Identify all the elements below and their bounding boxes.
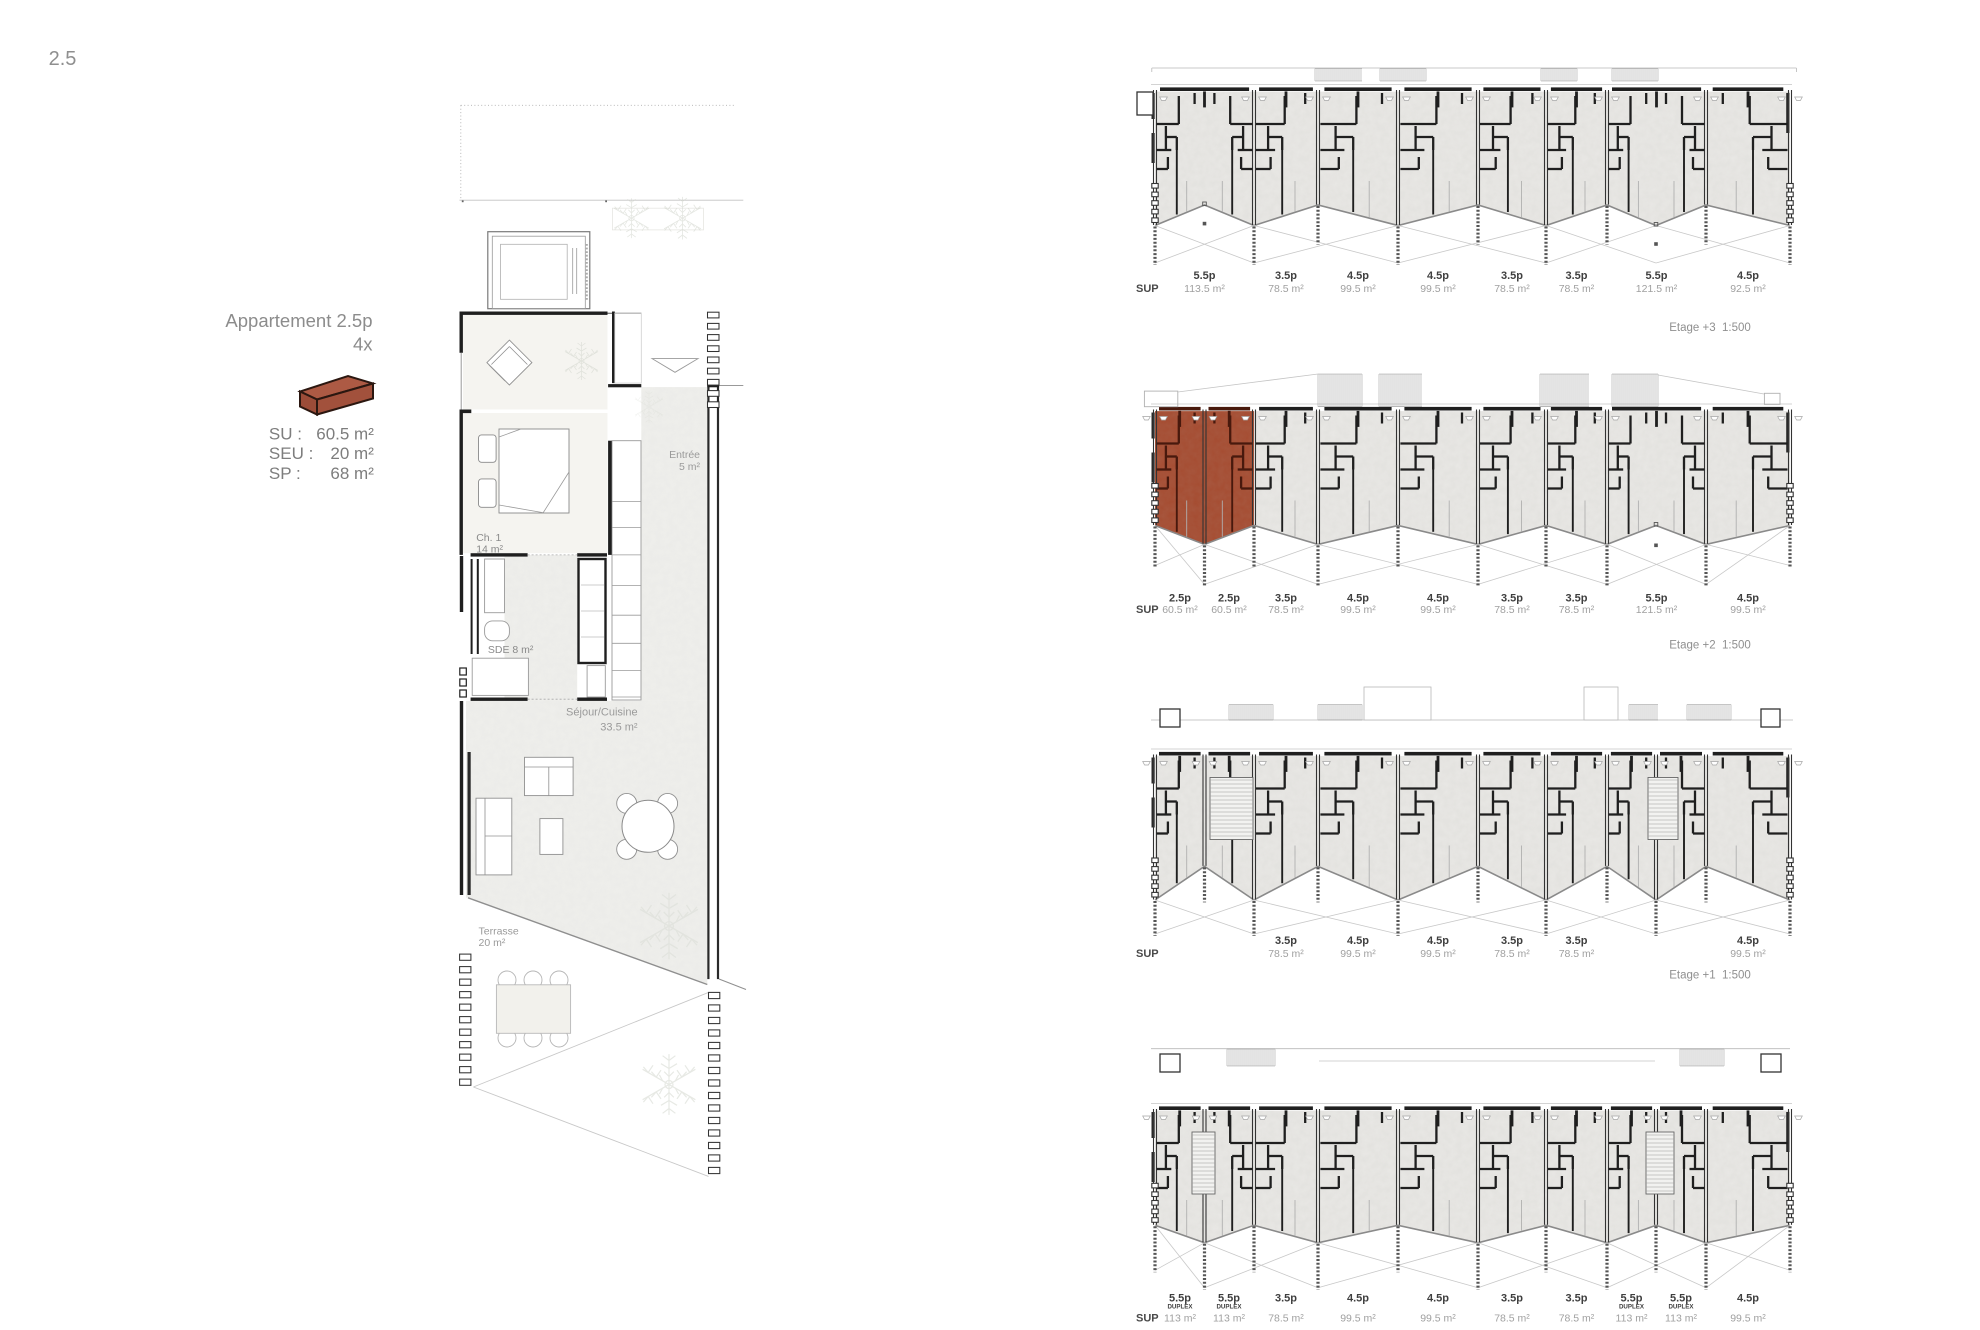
svg-text:Entrée: Entrée <box>669 449 700 461</box>
svg-text:5.5p: 5.5p <box>1193 270 1215 282</box>
svg-text:DUPLEX: DUPLEX <box>1216 1304 1242 1311</box>
svg-text:68 m²: 68 m² <box>330 464 374 483</box>
svg-text:5.5p: 5.5p <box>1645 592 1667 604</box>
svg-text:3.5p: 3.5p <box>1275 935 1297 947</box>
svg-text:Etage +2 1:500: Etage +2 1:500 <box>1669 640 1751 652</box>
svg-text:78.5 m²: 78.5 m² <box>1268 283 1304 295</box>
svg-text:4.5p: 4.5p <box>1427 1293 1449 1305</box>
svg-text:2.5p: 2.5p <box>1169 592 1191 604</box>
svg-text:113.5 m²: 113.5 m² <box>1184 283 1225 295</box>
svg-text:99.5 m²: 99.5 m² <box>1340 1312 1376 1324</box>
svg-text:78.5 m²: 78.5 m² <box>1494 948 1530 960</box>
svg-text:99.5 m²: 99.5 m² <box>1420 948 1456 960</box>
svg-text:99.5 m²: 99.5 m² <box>1730 1312 1766 1324</box>
svg-text:4.5p: 4.5p <box>1737 270 1759 282</box>
svg-text:3.5p: 3.5p <box>1501 1293 1523 1305</box>
svg-text:60.5 m²: 60.5 m² <box>316 425 374 444</box>
svg-text:78.5 m²: 78.5 m² <box>1268 948 1304 960</box>
svg-text:78.5 m²: 78.5 m² <box>1268 1312 1304 1324</box>
svg-text:121.5 m²: 121.5 m² <box>1636 283 1678 295</box>
svg-text:3.5p: 3.5p <box>1565 935 1587 947</box>
svg-text:2.5: 2.5 <box>49 48 77 70</box>
svg-text:4.5p: 4.5p <box>1427 592 1449 604</box>
svg-text:4.5p: 4.5p <box>1347 592 1369 604</box>
svg-text:113 m²: 113 m² <box>1616 1312 1648 1324</box>
svg-text:99.5 m²: 99.5 m² <box>1420 283 1456 295</box>
svg-text:14 m²: 14 m² <box>476 544 503 556</box>
svg-text:Ch. 1: Ch. 1 <box>476 532 501 544</box>
svg-text:3.5p: 3.5p <box>1501 592 1523 604</box>
svg-text:78.5 m²: 78.5 m² <box>1494 604 1530 616</box>
svg-text:20 m²: 20 m² <box>479 937 506 949</box>
svg-text:4.5p: 4.5p <box>1427 270 1449 282</box>
svg-text:113 m²: 113 m² <box>1213 1312 1245 1324</box>
svg-text:78.5 m²: 78.5 m² <box>1494 1312 1530 1324</box>
svg-text:113 m²: 113 m² <box>1665 1312 1697 1324</box>
svg-text:99.5 m²: 99.5 m² <box>1730 604 1766 616</box>
svg-text:3.5p: 3.5p <box>1565 1293 1587 1305</box>
svg-text:4.5p: 4.5p <box>1427 935 1449 947</box>
svg-text:78.5 m²: 78.5 m² <box>1494 283 1530 295</box>
svg-text:SP :: SP : <box>269 464 301 483</box>
svg-text:99.5 m²: 99.5 m² <box>1420 604 1456 616</box>
svg-text:3.5p: 3.5p <box>1275 270 1297 282</box>
svg-text:4.5p: 4.5p <box>1737 592 1759 604</box>
svg-text:3.5p: 3.5p <box>1501 270 1523 282</box>
svg-text:99.5 m²: 99.5 m² <box>1340 948 1376 960</box>
svg-text:SUP: SUP <box>1136 604 1159 616</box>
svg-text:DUPLEX: DUPLEX <box>1167 1304 1193 1311</box>
svg-text:Etage +1 1:500: Etage +1 1:500 <box>1669 970 1751 982</box>
svg-text:78.5 m²: 78.5 m² <box>1559 283 1595 295</box>
svg-text:99.5 m²: 99.5 m² <box>1730 948 1766 960</box>
svg-text:3.5p: 3.5p <box>1275 592 1297 604</box>
svg-text:99.5 m²: 99.5 m² <box>1340 283 1376 295</box>
svg-text:3.5p: 3.5p <box>1275 1293 1297 1305</box>
svg-text:78.5 m²: 78.5 m² <box>1559 948 1595 960</box>
svg-text:121.5 m²: 121.5 m² <box>1636 604 1678 616</box>
svg-text:3.5p: 3.5p <box>1565 592 1587 604</box>
svg-text:SU :: SU : <box>269 425 302 444</box>
svg-text:Séjour/Cuisine: Séjour/Cuisine <box>566 707 638 719</box>
svg-text:33.5 m²: 33.5 m² <box>600 722 638 734</box>
svg-text:60.5 m²: 60.5 m² <box>1211 604 1247 616</box>
svg-text:3.5p: 3.5p <box>1501 935 1523 947</box>
svg-text:SDE 8 m²: SDE 8 m² <box>488 644 534 656</box>
svg-text:4.5p: 4.5p <box>1347 935 1369 947</box>
svg-text:4.5p: 4.5p <box>1737 935 1759 947</box>
svg-text:20 m²: 20 m² <box>330 444 374 463</box>
svg-text:SUP: SUP <box>1136 283 1159 295</box>
svg-text:SUP: SUP <box>1136 948 1159 960</box>
svg-text:Etage +3 1:500: Etage +3 1:500 <box>1669 322 1751 334</box>
svg-text:Terrasse: Terrasse <box>479 926 519 938</box>
svg-text:78.5 m²: 78.5 m² <box>1559 604 1595 616</box>
svg-text:78.5 m²: 78.5 m² <box>1268 604 1304 616</box>
svg-text:78.5 m²: 78.5 m² <box>1559 1312 1595 1324</box>
svg-text:4.5p: 4.5p <box>1737 1293 1759 1305</box>
svg-text:60.5 m²: 60.5 m² <box>1162 604 1198 616</box>
svg-text:99.5 m²: 99.5 m² <box>1420 1312 1456 1324</box>
svg-text:DUPLEX: DUPLEX <box>1668 1304 1694 1311</box>
svg-text:92.5 m²: 92.5 m² <box>1730 283 1766 295</box>
svg-text:4x: 4x <box>353 334 373 355</box>
svg-text:2.5p: 2.5p <box>1218 592 1240 604</box>
svg-text:DUPLEX: DUPLEX <box>1619 1304 1645 1311</box>
svg-text:3.5p: 3.5p <box>1565 270 1587 282</box>
svg-text:SEU :: SEU : <box>269 444 313 463</box>
svg-text:5.5p: 5.5p <box>1645 270 1667 282</box>
svg-text:4.5p: 4.5p <box>1347 1293 1369 1305</box>
svg-text:99.5 m²: 99.5 m² <box>1340 604 1376 616</box>
svg-text:SUP: SUP <box>1136 1312 1159 1324</box>
svg-text:113 m²: 113 m² <box>1164 1312 1196 1324</box>
svg-text:5 m²: 5 m² <box>679 461 701 473</box>
svg-text:Appartement 2.5p: Appartement 2.5p <box>225 310 372 331</box>
svg-text:4.5p: 4.5p <box>1347 270 1369 282</box>
